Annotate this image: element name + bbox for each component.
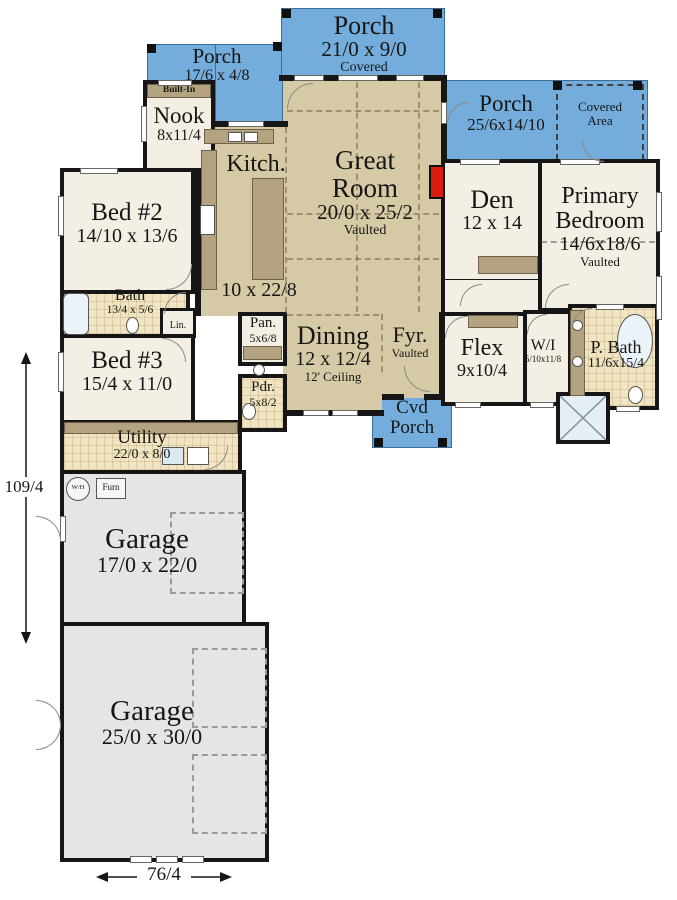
- built-in-label: Built-In: [148, 85, 210, 96]
- bathtub-icon: [63, 293, 89, 335]
- window: [338, 75, 378, 81]
- bath-label: Bath 13/4 x 5/6: [94, 288, 166, 317]
- primary-bath-label: P. Bath 11/6x15/4: [578, 338, 654, 371]
- foyer-open-line: [381, 314, 383, 372]
- water-heater-label: W/H: [67, 478, 89, 492]
- dining-label: Dining 12 x 12/4 12' Ceiling: [287, 322, 379, 383]
- window: [656, 276, 662, 320]
- porch-post: [438, 438, 447, 447]
- porch-post: [147, 44, 156, 53]
- walk-in-label: W/I 5/10x11/8: [517, 338, 569, 364]
- foyer-label: Fyr. Vaulted: [384, 324, 436, 359]
- kitchen-label: Kitch.: [206, 152, 306, 177]
- porch-post: [633, 81, 642, 90]
- shower: [556, 392, 610, 444]
- covered-area-label: Covered Area: [560, 100, 640, 127]
- door-arc: [36, 725, 61, 750]
- den-label: Den 12 x 14: [451, 186, 533, 234]
- porch-post: [374, 438, 383, 447]
- flex-label: Flex 9x10/4: [445, 336, 519, 380]
- window: [460, 159, 500, 165]
- garage2-storage-outline: [192, 754, 267, 834]
- bed2-label: Bed #2 14/10 x 13/6: [64, 200, 190, 247]
- porch-top-label: Porch 21/0 x 9/0 Covered: [289, 12, 439, 75]
- furnace: Furn: [96, 478, 126, 499]
- kitchen-dims-label: 10 x 22/8: [206, 280, 312, 301]
- porch-post: [553, 81, 562, 90]
- window: [596, 304, 624, 310]
- window: [294, 75, 324, 81]
- primary-toilet-icon: [628, 386, 643, 404]
- porch-right-label: Porch 25/6x14/10: [452, 92, 560, 134]
- range-icon: [200, 205, 215, 235]
- garage1-label: Garage 17/0 x 22/0: [82, 524, 212, 577]
- cvd-porch-label: Cvd Porch: [380, 398, 444, 438]
- garage-door-panel: [182, 856, 204, 863]
- window: [616, 406, 640, 412]
- pantry-label: Pan. 5x6/8: [241, 316, 285, 344]
- kitchen-island: [252, 178, 284, 280]
- ceiling-line: [287, 110, 439, 112]
- width-dimension-label: 76/4: [137, 864, 191, 886]
- dining-open-line: [287, 314, 379, 316]
- height-dimension-arrow: [6, 352, 46, 644]
- window: [228, 121, 264, 127]
- utility-label: Utility 22/0 x 8/0: [86, 428, 198, 462]
- window: [530, 402, 554, 408]
- built-in-cabinet: Built-In: [147, 84, 211, 98]
- window: [455, 402, 481, 408]
- great-room-label: Great Room 20/0 x 25/2 Vaulted: [298, 146, 432, 239]
- floor-plan: Built-In W/H Furn: [0, 0, 677, 900]
- kitchen-sink-icon: [244, 132, 258, 142]
- garage2-label: Garage 25/0 x 30/0: [86, 696, 218, 749]
- ceiling-line: [287, 258, 439, 260]
- shower-glass-icon: [560, 396, 606, 440]
- water-heater: W/H: [66, 477, 90, 501]
- linen-label: Lin.: [162, 321, 194, 331]
- pantry-shelf: [243, 346, 282, 360]
- window: [80, 168, 118, 174]
- den-closet: [478, 256, 538, 274]
- porch-left-label: Porch 17/6 x 4/8: [158, 46, 276, 84]
- door-arc: [36, 700, 61, 725]
- kitchen-sink-icon: [228, 132, 242, 142]
- powder-label: Pdr. 5x8/2: [241, 380, 285, 408]
- bed3-label: Bed #3 15/4 x 11/0: [64, 348, 190, 395]
- toilet-icon: [126, 317, 139, 334]
- garage-door-panel: [156, 856, 178, 863]
- garage-door-panel: [130, 856, 152, 863]
- furnace-label: Furn: [97, 479, 125, 492]
- powder-sink-icon: [253, 364, 265, 376]
- nook-label: Nook 8x11/4: [145, 104, 213, 145]
- vertical-arrow-icon: [6, 352, 46, 644]
- flex-closet: [468, 315, 518, 328]
- window: [332, 410, 358, 416]
- window: [303, 410, 329, 416]
- door-opening: [441, 102, 447, 124]
- primary-bedroom-label: Primary Bedroom 14/6x18/6 Vaulted: [542, 184, 658, 268]
- window: [396, 75, 424, 81]
- height-dimension-label: 109/4: [0, 477, 48, 497]
